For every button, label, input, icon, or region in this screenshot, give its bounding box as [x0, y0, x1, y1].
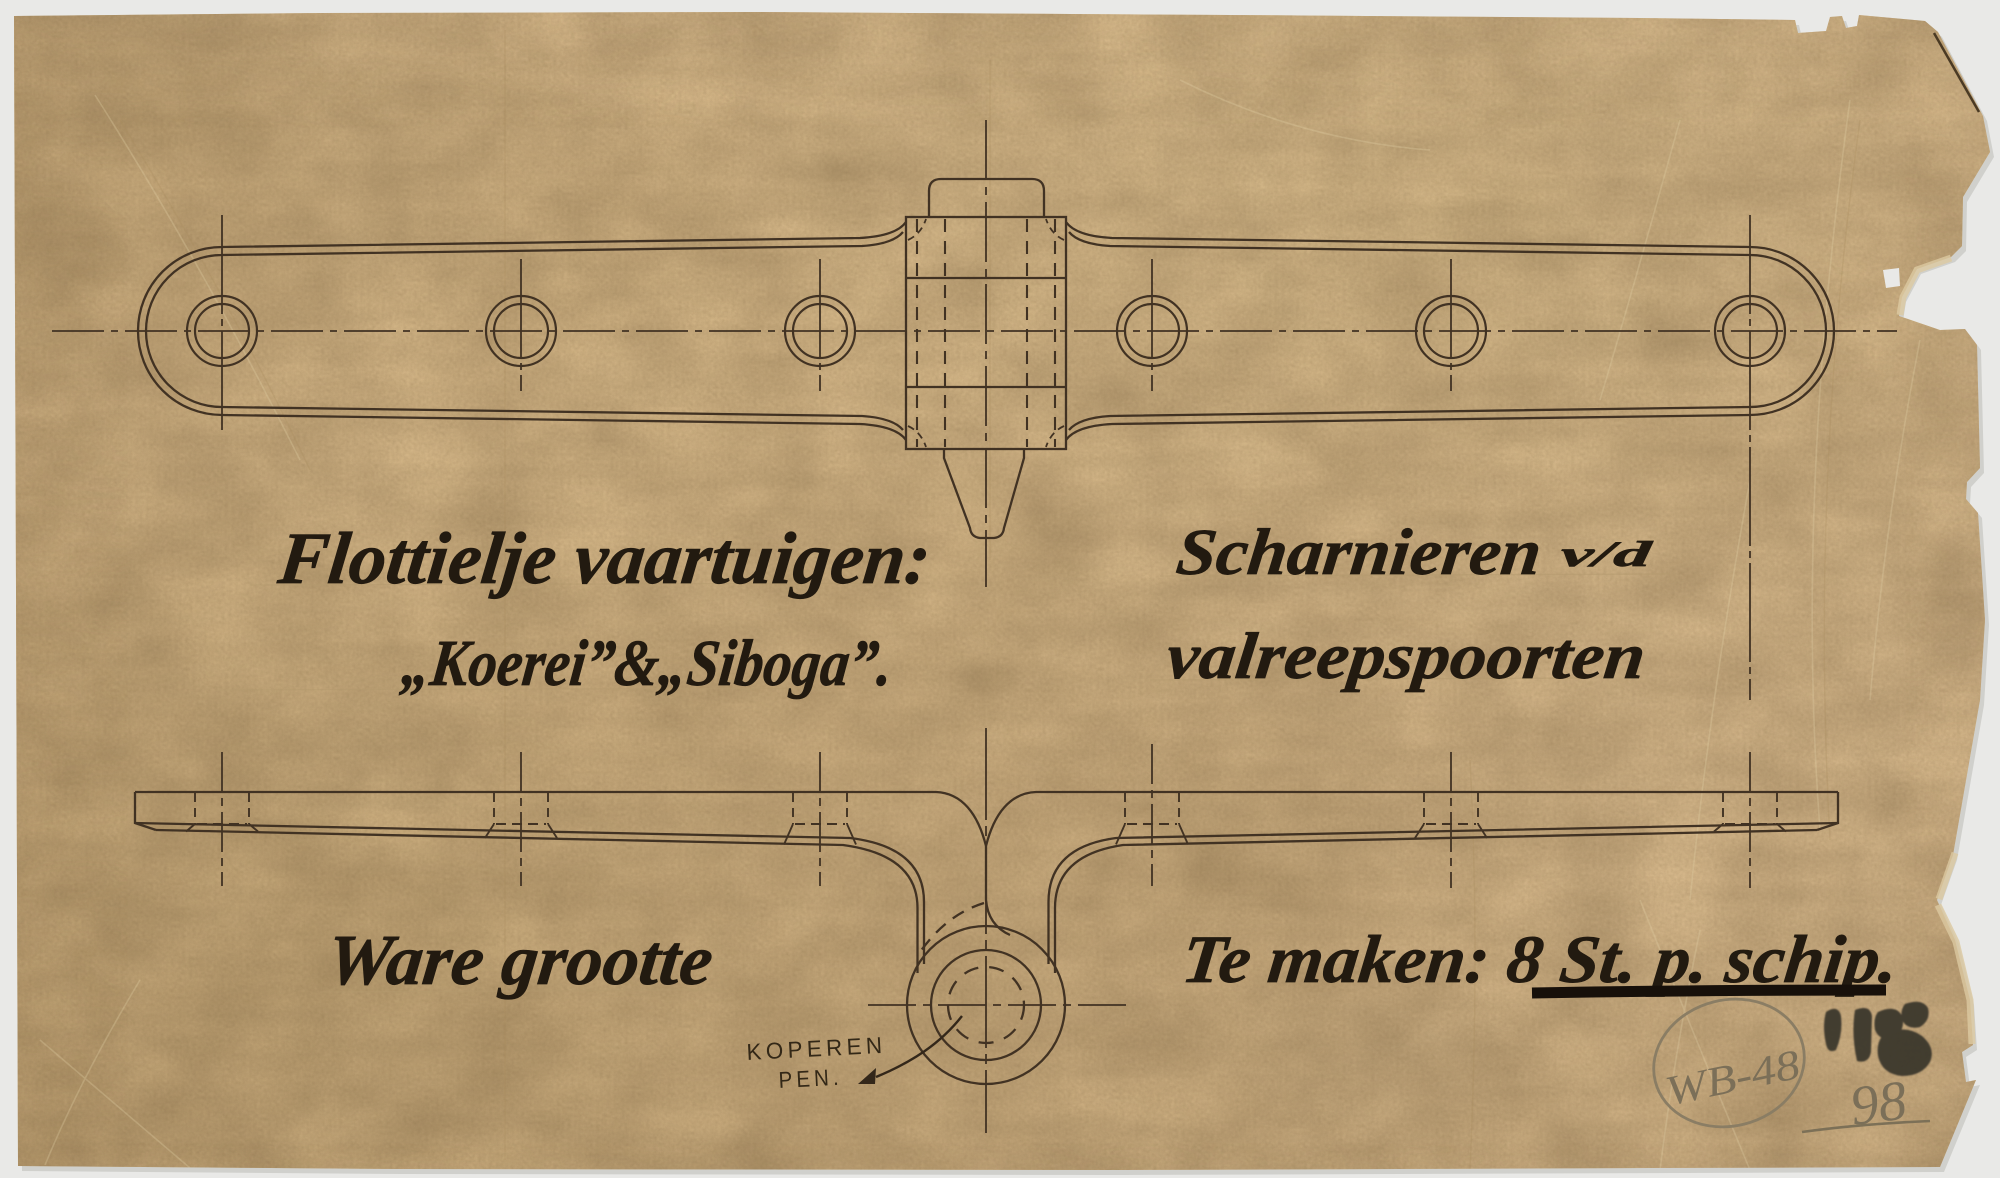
svg-text:98: 98 [1847, 1069, 1910, 1137]
svg-text:v/d: v/d [1559, 534, 1655, 574]
svg-text:Scharnieren: Scharnieren [1173, 516, 1545, 589]
svg-text:„Koerei”&„Siboga”.: „Koerei”&„Siboga”. [398, 627, 896, 700]
svg-text:Flottielje vaartuigen:: Flottielje vaartuigen: [274, 518, 935, 600]
svg-text:Ware grootte: Ware grootte [323, 920, 717, 1000]
svg-text:PEN.: PEN. [778, 1064, 843, 1093]
svg-text:valreepspoorten: valreepspoorten [1163, 620, 1649, 693]
